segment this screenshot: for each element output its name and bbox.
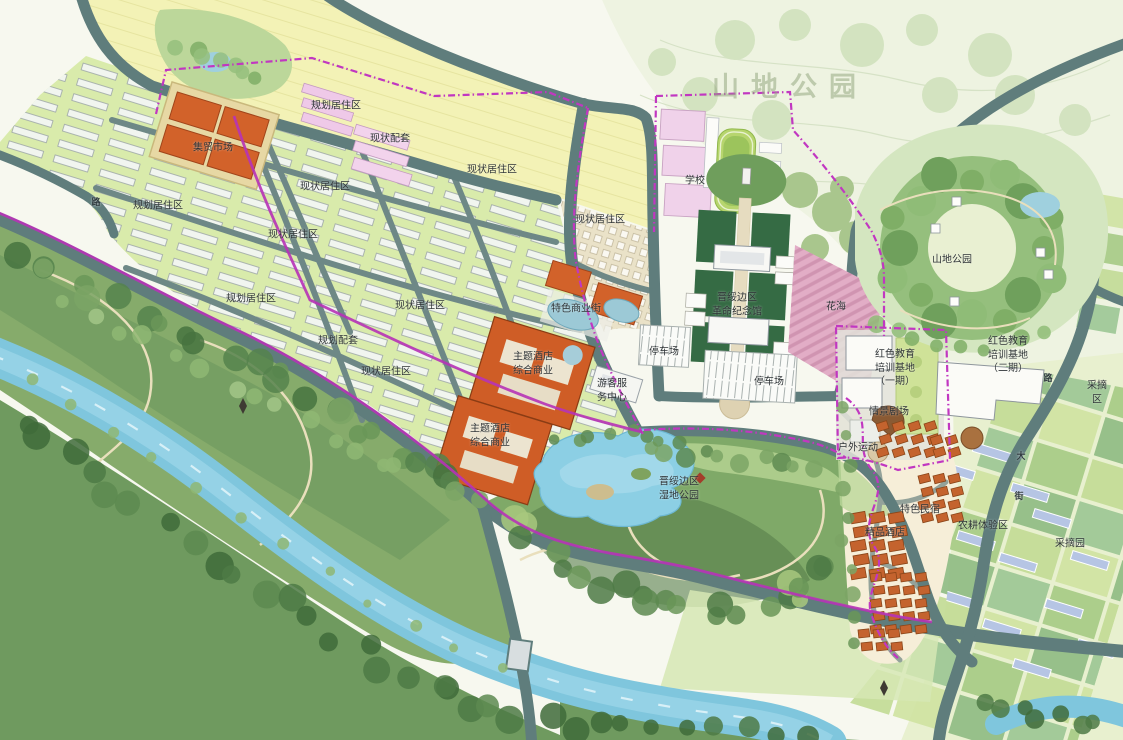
master-plan-map: 集贸市场规划居住区现状配套现状居住区现状居住区规划居住区现状居住区现状居住区规划… (0, 0, 1123, 740)
lake-wetland (534, 429, 694, 526)
bridge (506, 639, 532, 672)
park-mountain (855, 124, 1108, 352)
map-canvas (0, 0, 1123, 740)
